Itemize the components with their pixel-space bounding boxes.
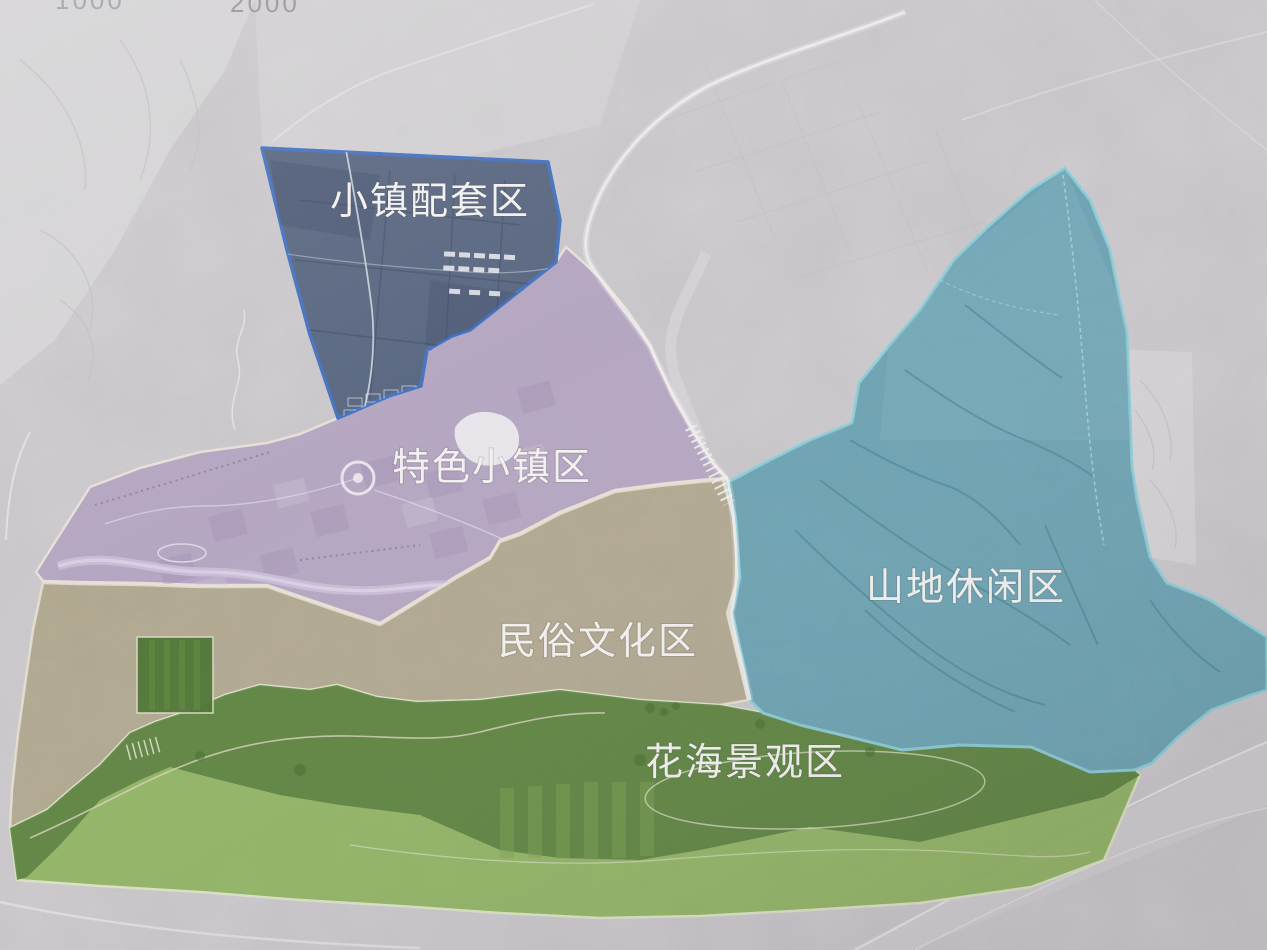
map-photo: 1000 2000 小镇配套区 特色小镇区 民俗文化区 山地休闲区 花海景观区 [0,0,1267,950]
photo-glare [0,0,1267,950]
zoning-map-canvas: 1000 2000 小镇配套区 特色小镇区 民俗文化区 山地休闲区 花海景观区 [0,0,1267,950]
